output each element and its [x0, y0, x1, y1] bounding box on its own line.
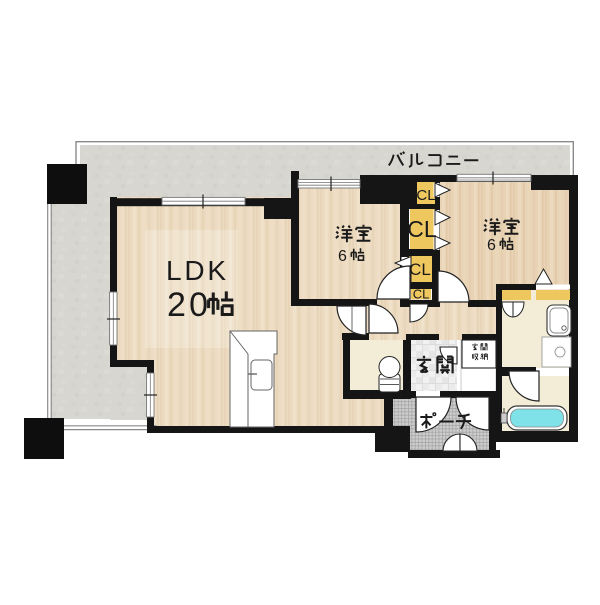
svg-text:6: 6: [338, 248, 347, 265]
svg-text:CL: CL: [416, 187, 435, 204]
svg-text:CL: CL: [409, 260, 431, 279]
svg-text:CL: CL: [413, 287, 430, 302]
svg-text:CL: CL: [407, 216, 437, 242]
svg-text:LDK: LDK: [166, 255, 228, 286]
svg-text:6: 6: [487, 237, 496, 254]
